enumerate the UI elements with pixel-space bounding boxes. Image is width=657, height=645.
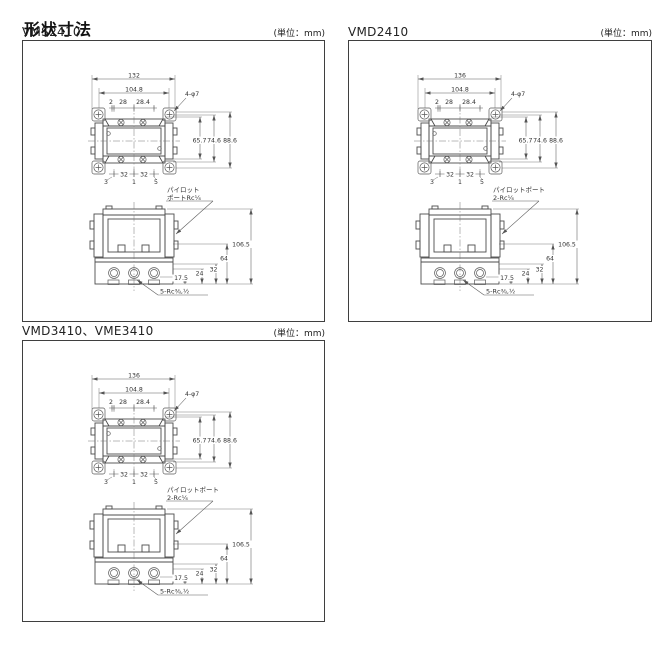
dim-17-5: 17.5 xyxy=(500,275,514,282)
technical-drawing-svg: 136 104.8 2 28 28.4 4-φ7 65.7 74.6 88.6 … xyxy=(23,341,326,621)
dim-bottom-pitch-left: 32 xyxy=(120,471,128,478)
dim-overall-width: 132 xyxy=(128,73,140,80)
dim-bottom-pitch-right: 32 xyxy=(466,171,474,178)
front-view: パイロットポート 2-Rc¼ 106.5 64 32 24 17.5 5-Rc⅜… xyxy=(416,186,579,296)
dimension-drawing-box: 136 104.8 2 28 28.4 4-φ7 65.7 74.6 88.6 … xyxy=(22,340,325,622)
panel-unit-label: (単位：mm) xyxy=(273,326,325,339)
dim-offset: 2 xyxy=(435,99,439,106)
dim-bottom-left: 3 xyxy=(430,179,434,186)
pilot-port-label-line1: パイロットポート xyxy=(167,486,219,494)
dim-pitch: 28 xyxy=(119,99,127,106)
dim-17-5: 17.5 xyxy=(174,275,188,282)
panel-header: VMS2410 (単位：mm) xyxy=(22,22,325,39)
dim-bottom-right: 5 xyxy=(480,179,484,186)
dim-pitch: 28 xyxy=(445,99,453,106)
dim-bottom-center: 1 xyxy=(132,479,136,486)
dim-overall-height: 106.5 xyxy=(232,242,250,249)
dim-24: 24 xyxy=(522,271,530,278)
dim-64: 64 xyxy=(220,256,228,263)
bottom-ports-label: 5-Rc⅜,½ xyxy=(160,288,189,296)
dim-32: 32 xyxy=(210,267,218,274)
dim-24: 24 xyxy=(196,571,204,578)
dim-height-mid: 74.6 xyxy=(207,138,221,145)
dim-bottom-left: 3 xyxy=(104,179,108,186)
pilot-port-label-line2: ポートRc¼ xyxy=(167,194,202,202)
panel-model: VMD2410 xyxy=(348,25,408,39)
panel-model: VMS2410 xyxy=(22,25,81,39)
front-view: パイロット ポートRc¼ 106.5 64 32 24 17.5 5-Rc⅜,½ xyxy=(90,186,253,296)
dim-bottom-pitch-right: 32 xyxy=(140,171,148,178)
dim-overall-width: 136 xyxy=(454,73,466,80)
panel-vms2410: VMS2410 (単位：mm) xyxy=(22,22,325,322)
panel-unit-label: (単位：mm) xyxy=(600,26,652,39)
dim-bottom-right: 5 xyxy=(154,479,158,486)
dim-bottom-center: 1 xyxy=(458,179,462,186)
dim-overall-width: 136 xyxy=(128,373,140,380)
dim-offset: 2 xyxy=(109,399,113,406)
dim-32: 32 xyxy=(536,267,544,274)
technical-drawing-svg: 132 104.8 2 28 28.4 4-φ7 65.7 74.6 88.6 … xyxy=(23,41,326,321)
top-view: 136 104.8 2 28 28.4 4-φ7 65.7 74.6 88.6 … xyxy=(414,73,564,187)
dim-offset: 2 xyxy=(109,99,113,106)
dim-64: 64 xyxy=(220,556,228,563)
bottom-ports-label: 5-Rc⅜,½ xyxy=(160,588,189,596)
dim-overall-height: 106.5 xyxy=(558,242,576,249)
pilot-port-label-line1: パイロット xyxy=(167,186,200,194)
dim-bottom-center: 1 xyxy=(132,179,136,186)
bottom-ports-label: 5-Rc⅜,½ xyxy=(486,288,515,296)
dim-bottom-pitch-left: 32 xyxy=(120,171,128,178)
dimension-drawing-box: 136 104.8 2 28 28.4 4-φ7 65.7 74.6 88.6 … xyxy=(348,40,652,322)
dim-bottom-pitch-left: 32 xyxy=(446,171,454,178)
dim-mount-width: 104.8 xyxy=(451,87,469,94)
mounting-holes-label: 4-φ7 xyxy=(185,391,199,398)
pilot-port-label-line1: パイロットポート xyxy=(493,186,545,194)
dim-32: 32 xyxy=(210,567,218,574)
dim-pitch: 28 xyxy=(119,399,127,406)
panel-model: VMD3410、VME3410 xyxy=(22,322,154,339)
dim-pitch-end: 28.4 xyxy=(136,99,150,106)
dim-mount-width: 104.8 xyxy=(125,87,143,94)
dim-height-inner: 65.7 xyxy=(193,138,207,145)
dim-bottom-pitch-right: 32 xyxy=(140,471,148,478)
dim-pitch-end: 28.4 xyxy=(136,399,150,406)
panel-unit-label: (単位：mm) xyxy=(273,26,325,39)
dim-overall-height: 106.5 xyxy=(232,542,250,549)
panel-header: VMD3410、VME3410 (単位：mm) xyxy=(22,322,325,339)
dim-height-outer: 88.6 xyxy=(223,138,237,145)
dim-bottom-right: 5 xyxy=(154,179,158,186)
dim-height-inner: 65.7 xyxy=(193,438,207,445)
dim-pitch-end: 28.4 xyxy=(462,99,476,106)
dim-height-mid: 74.6 xyxy=(533,138,547,145)
panel-header: VMD2410 (単位：mm) xyxy=(348,22,652,39)
dim-64: 64 xyxy=(546,256,554,263)
dim-height-outer: 88.6 xyxy=(223,438,237,445)
pilot-port-label-line2: 2-Rc¼ xyxy=(167,494,189,502)
pilot-port-label-line2: 2-Rc¼ xyxy=(493,194,515,202)
top-view: 132 104.8 2 28 28.4 4-φ7 65.7 74.6 88.6 … xyxy=(88,73,238,187)
mounting-holes-label: 4-φ7 xyxy=(511,91,525,98)
dim-height-outer: 88.6 xyxy=(549,138,563,145)
dim-height-mid: 74.6 xyxy=(207,438,221,445)
dim-mount-width: 104.8 xyxy=(125,387,143,394)
dim-24: 24 xyxy=(196,271,204,278)
dimension-drawing-box: 132 104.8 2 28 28.4 4-φ7 65.7 74.6 88.6 … xyxy=(22,40,325,322)
dim-bottom-left: 3 xyxy=(104,479,108,486)
technical-drawing-svg: 136 104.8 2 28 28.4 4-φ7 65.7 74.6 88.6 … xyxy=(349,41,652,321)
dim-height-inner: 65.7 xyxy=(519,138,533,145)
mounting-holes-label: 4-φ7 xyxy=(185,91,199,98)
panel-vmd3410-vme3410: VMD3410、VME3410 (単位：mm) xyxy=(22,322,325,622)
dim-17-5: 17.5 xyxy=(174,575,188,582)
front-view: パイロットポート 2-Rc¼ 106.5 64 32 24 17.5 5-Rc⅜… xyxy=(90,486,253,596)
top-view: 136 104.8 2 28 28.4 4-φ7 65.7 74.6 88.6 … xyxy=(88,373,238,487)
panel-vmd2410: VMD2410 (単位：mm) xyxy=(348,22,652,322)
